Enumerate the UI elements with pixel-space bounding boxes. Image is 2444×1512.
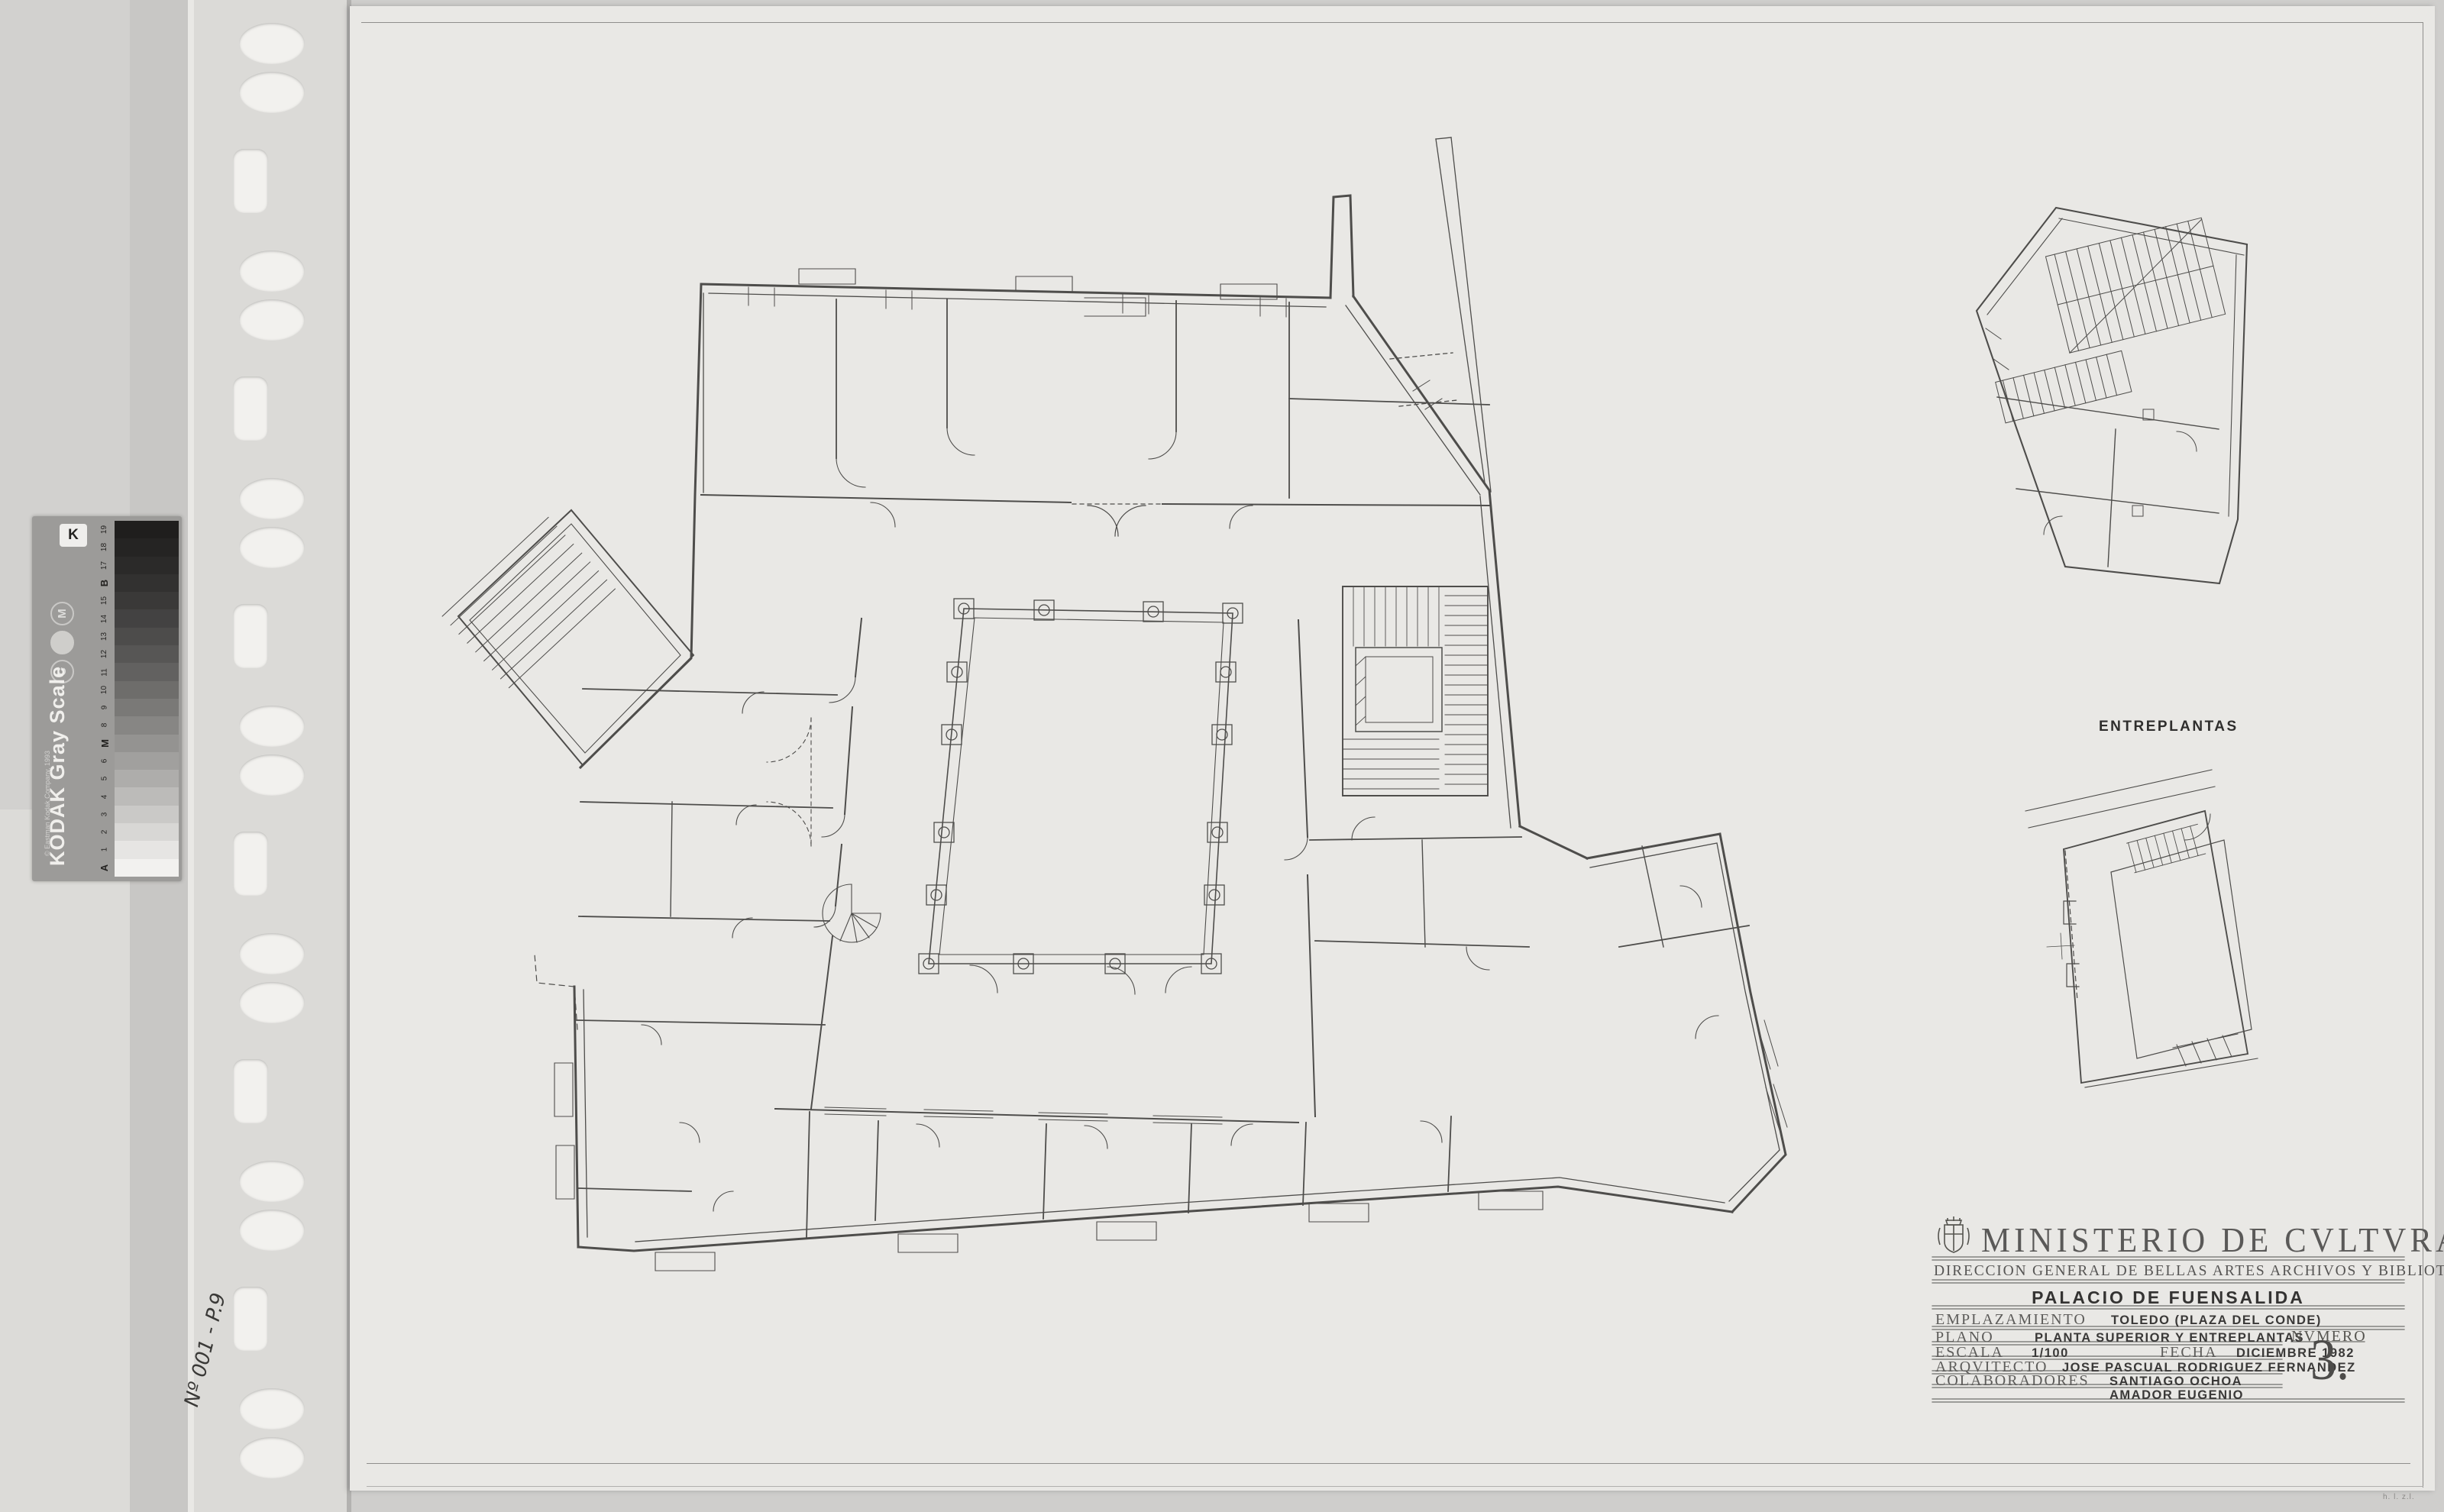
kodak-patch-A	[115, 859, 179, 877]
kodak-gray-scale-strip: K M C KODAK Gray Scale © Eastman Kodak C…	[32, 516, 182, 881]
kodak-label-8: 8	[96, 716, 113, 734]
boundary-dashes	[535, 955, 577, 1029]
kodak-label-18: 18	[96, 538, 113, 556]
kodak-patch-19	[115, 521, 179, 538]
kodak-patch-5	[115, 770, 179, 787]
kodak-gray-patches	[115, 521, 179, 877]
kodak-label-17: 17	[96, 557, 113, 574]
kodak-label-4: 4	[96, 787, 113, 805]
field-colaborador-2: AMADOR EUGENIO	[2109, 1388, 2244, 1403]
kodak-logo-icon: K	[60, 524, 87, 547]
field-colaboradores-label: COLABORADORES	[1935, 1372, 2090, 1390]
kodak-label-M: M	[96, 735, 113, 752]
project-title: PALACIO DE FUENSALIDA	[1932, 1287, 2404, 1308]
kodak-patch-9	[115, 699, 179, 716]
kodak-patch-B	[115, 574, 179, 592]
outer-wall-inner-lines	[584, 293, 1780, 1242]
kodak-label-A: A	[96, 859, 113, 877]
floor-plan-drawing	[0, 0, 2444, 1512]
west-annex	[458, 510, 693, 765]
field-colaborador-1: SANTIAGO OCHOA	[2109, 1375, 2242, 1389]
field-fecha-label: FECHA	[2160, 1344, 2218, 1362]
kodak-patch-10	[115, 681, 179, 699]
kodak-patch-4	[115, 787, 179, 805]
field-emplazamiento-value: TOLEDO (PLAZA DEL CONDE)	[2111, 1313, 2322, 1328]
entreplanta-plan-upper	[1977, 208, 2247, 583]
gallery-walls	[701, 495, 1489, 1123]
kodak-patch-15	[115, 592, 179, 609]
outer-walls	[574, 195, 1786, 1251]
field-emplazamiento-label: EMPLAZAMIENTO	[1935, 1311, 2087, 1329]
kodak-patch-17	[115, 557, 179, 574]
kodak-scale-labels: 191817B15141312111098M654321A	[96, 521, 113, 877]
kodak-label-6: 6	[96, 752, 113, 770]
kodak-label-5: 5	[96, 770, 113, 787]
kodak-label-11: 11	[96, 663, 113, 680]
ministry-title: MINISTERIO DE CVLTVRA	[1981, 1220, 2444, 1260]
spiral-stair	[823, 884, 881, 942]
kodak-label-12: 12	[96, 645, 113, 663]
kodak-patch-2	[115, 823, 179, 841]
courtyard-south-arcs	[970, 965, 1191, 994]
courtyard-colonnade	[929, 609, 1233, 964]
kodak-copyright: © Eastman Kodak Company, 1993	[44, 688, 51, 856]
kodak-label-3: 3	[96, 806, 113, 823]
coat-of-arms-icon	[1934, 1216, 1974, 1255]
kodak-label-1: 1	[96, 841, 113, 858]
north-entrance-doors	[1072, 298, 1161, 536]
kodak-label-19: 19	[96, 521, 113, 538]
scanned-plan-scene: K M C KODAK Gray Scale © Eastman Kodak C…	[0, 0, 2444, 1512]
kodak-patch-11	[115, 663, 179, 680]
patio-west-dashed-doors	[767, 718, 811, 846]
entreplantas-label: ENTREPLANTAS	[2099, 719, 2239, 735]
kodak-patch-12	[115, 645, 179, 663]
kodak-label-14: 14	[96, 609, 113, 627]
kodak-patch-6	[115, 752, 179, 770]
door-arcs	[642, 428, 1718, 1211]
kodak-patch-13	[115, 628, 179, 645]
kodak-label-9: 9	[96, 699, 113, 716]
kodak-label-10: 10	[96, 681, 113, 699]
direction-subtitle: DIRECCION GENERAL DE BELLAS ARTES ARCHIV…	[1934, 1263, 2444, 1280]
west-annex-stair-hatch	[442, 517, 615, 687]
colonnade-columns	[919, 599, 1243, 974]
kodak-patch-8	[115, 716, 179, 734]
main-stair-treads	[1343, 586, 1488, 789]
interior-partitions	[577, 299, 1749, 1237]
sheet-number: 3.	[2310, 1327, 2349, 1394]
kodak-label-15: 15	[96, 592, 113, 609]
kodak-label-13: 13	[96, 628, 113, 645]
kodak-patch-M	[115, 735, 179, 752]
entreplanta-plan-lower	[2025, 770, 2258, 1087]
kodak-patch-1	[115, 841, 179, 858]
window-ticks	[748, 287, 1787, 1130]
kodak-patch-3	[115, 806, 179, 823]
kodak-label-B: B	[96, 574, 113, 592]
kodak-label-2: 2	[96, 823, 113, 841]
corner-pencil-note: h. l. z.l.	[2383, 1493, 2415, 1501]
kodak-patch-18	[115, 538, 179, 556]
kodak-patch-14	[115, 609, 179, 627]
window-sills	[554, 269, 1543, 1271]
